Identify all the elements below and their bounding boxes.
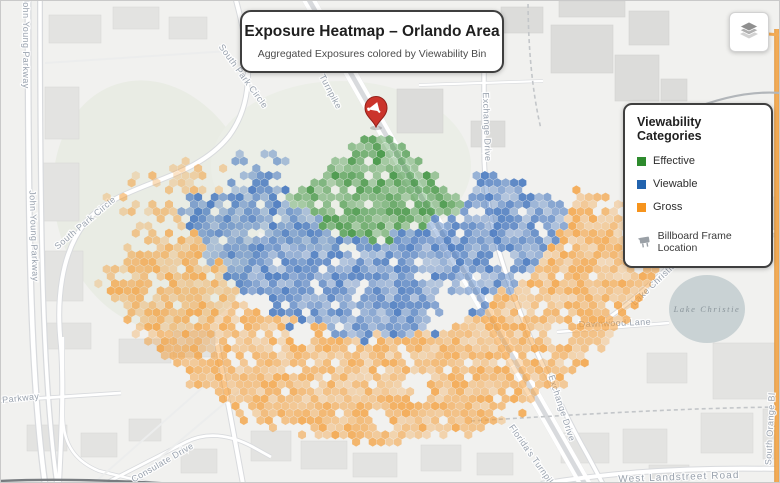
- legend-item-effective: Effective: [637, 155, 759, 167]
- effective-swatch: [637, 157, 646, 166]
- page-subtitle: Aggregated Exposures colored by Viewabil…: [242, 48, 502, 60]
- gross-swatch: [637, 203, 646, 212]
- legend-title: Viewability Categories: [637, 115, 759, 143]
- legend-panel: Viewability Categories Effective Viewabl…: [623, 103, 773, 268]
- road-label: John Young Parkway: [21, 1, 31, 89]
- legend-item-billboard: Billboard Frame Location: [637, 230, 759, 254]
- billboard-icon: [637, 235, 653, 249]
- layers-icon: [737, 20, 761, 44]
- legend-item-gross: Gross: [637, 201, 759, 213]
- viewable-swatch: [637, 180, 646, 189]
- title-card: Exposure Heatmap – Orlando Area Aggregat…: [240, 10, 504, 73]
- layers-control-button[interactable]: [729, 12, 769, 52]
- map-app-window: John Young ParkwayJohn Young ParkwaySout…: [0, 0, 780, 483]
- legend-item-viewable: Viewable: [637, 178, 759, 190]
- page-title: Exposure Heatmap – Orlando Area: [242, 23, 502, 41]
- lake-label: Lake Christie: [673, 304, 741, 314]
